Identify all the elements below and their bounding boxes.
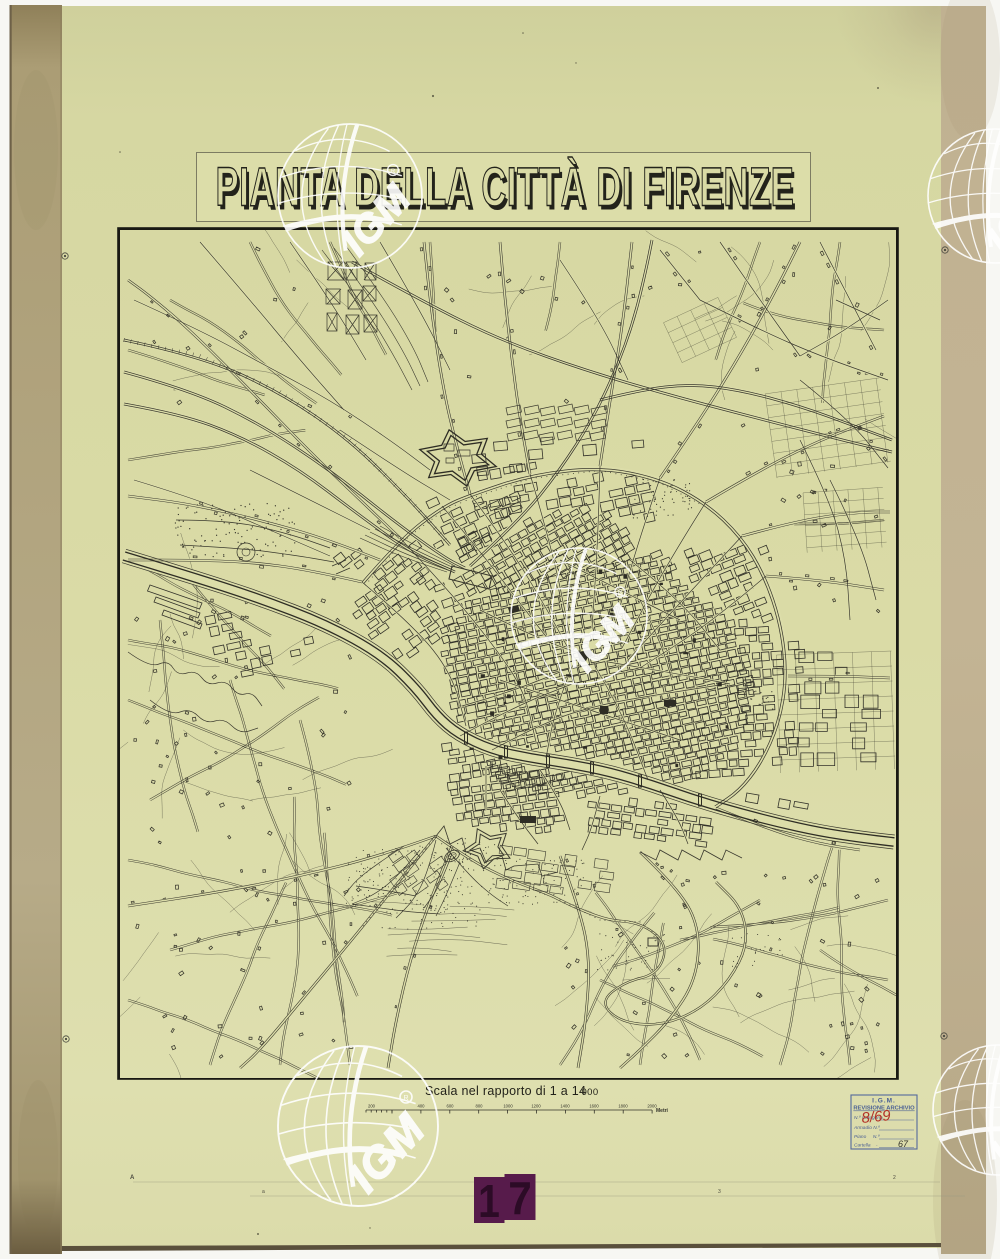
svg-text:1800: 1800 [618, 1104, 628, 1109]
svg-text:R: R [403, 1095, 408, 1102]
svg-text:2: 2 [893, 1175, 896, 1181]
svg-text:67: 67 [898, 1139, 909, 1149]
svg-text:I.G.M.: I.G.M. [872, 1098, 896, 1105]
svg-text:1200: 1200 [531, 1104, 541, 1109]
svg-text:Scala nel rapporto di 1 a 14: Scala nel rapporto di 1 a 14 [425, 1084, 586, 1098]
svg-text:400: 400 [418, 1104, 426, 1109]
svg-text:200: 200 [368, 1104, 376, 1109]
svg-text:1600: 1600 [589, 1104, 599, 1109]
svg-text:A: A [130, 1175, 135, 1181]
svg-text:1400: 1400 [560, 1104, 570, 1109]
svg-text:Piano N.º: Piano N.º [854, 1134, 880, 1140]
svg-text:000: 000 [582, 1087, 599, 1098]
svg-text:a: a [262, 1189, 265, 1195]
svg-text:Cartella -: Cartella - [854, 1143, 878, 1149]
svg-text:1: 1 [478, 1176, 500, 1228]
svg-text:800: 800 [476, 1104, 484, 1109]
svg-text:R: R [391, 169, 396, 175]
svg-text:8/69: 8/69 [861, 1107, 892, 1127]
svg-text:7: 7 [508, 1173, 532, 1224]
svg-text:600: 600 [447, 1104, 455, 1109]
svg-text:R: R [618, 590, 623, 596]
svg-text:1000: 1000 [503, 1104, 513, 1109]
svg-text:Metri: Metri [656, 1108, 669, 1114]
svg-text:3: 3 [718, 1189, 721, 1195]
